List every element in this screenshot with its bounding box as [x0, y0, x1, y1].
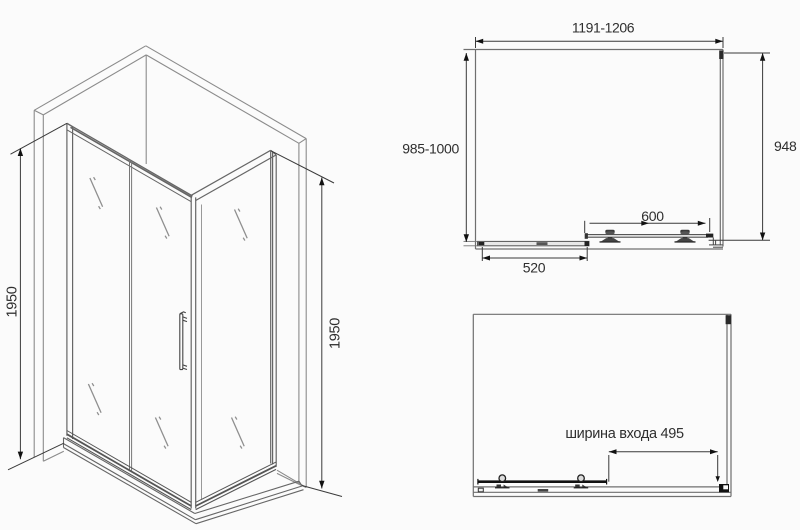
- svg-text:600: 600: [641, 208, 664, 224]
- svg-text:1950: 1950: [5, 286, 21, 317]
- svg-text:520: 520: [523, 260, 546, 276]
- svg-text:1191-1206: 1191-1206: [572, 19, 635, 35]
- svg-text:ширина входа 495: ширина входа 495: [565, 426, 684, 442]
- svg-text:1950: 1950: [328, 318, 344, 349]
- svg-text:948: 948: [774, 138, 797, 154]
- svg-text:985-1000: 985-1000: [402, 140, 459, 156]
